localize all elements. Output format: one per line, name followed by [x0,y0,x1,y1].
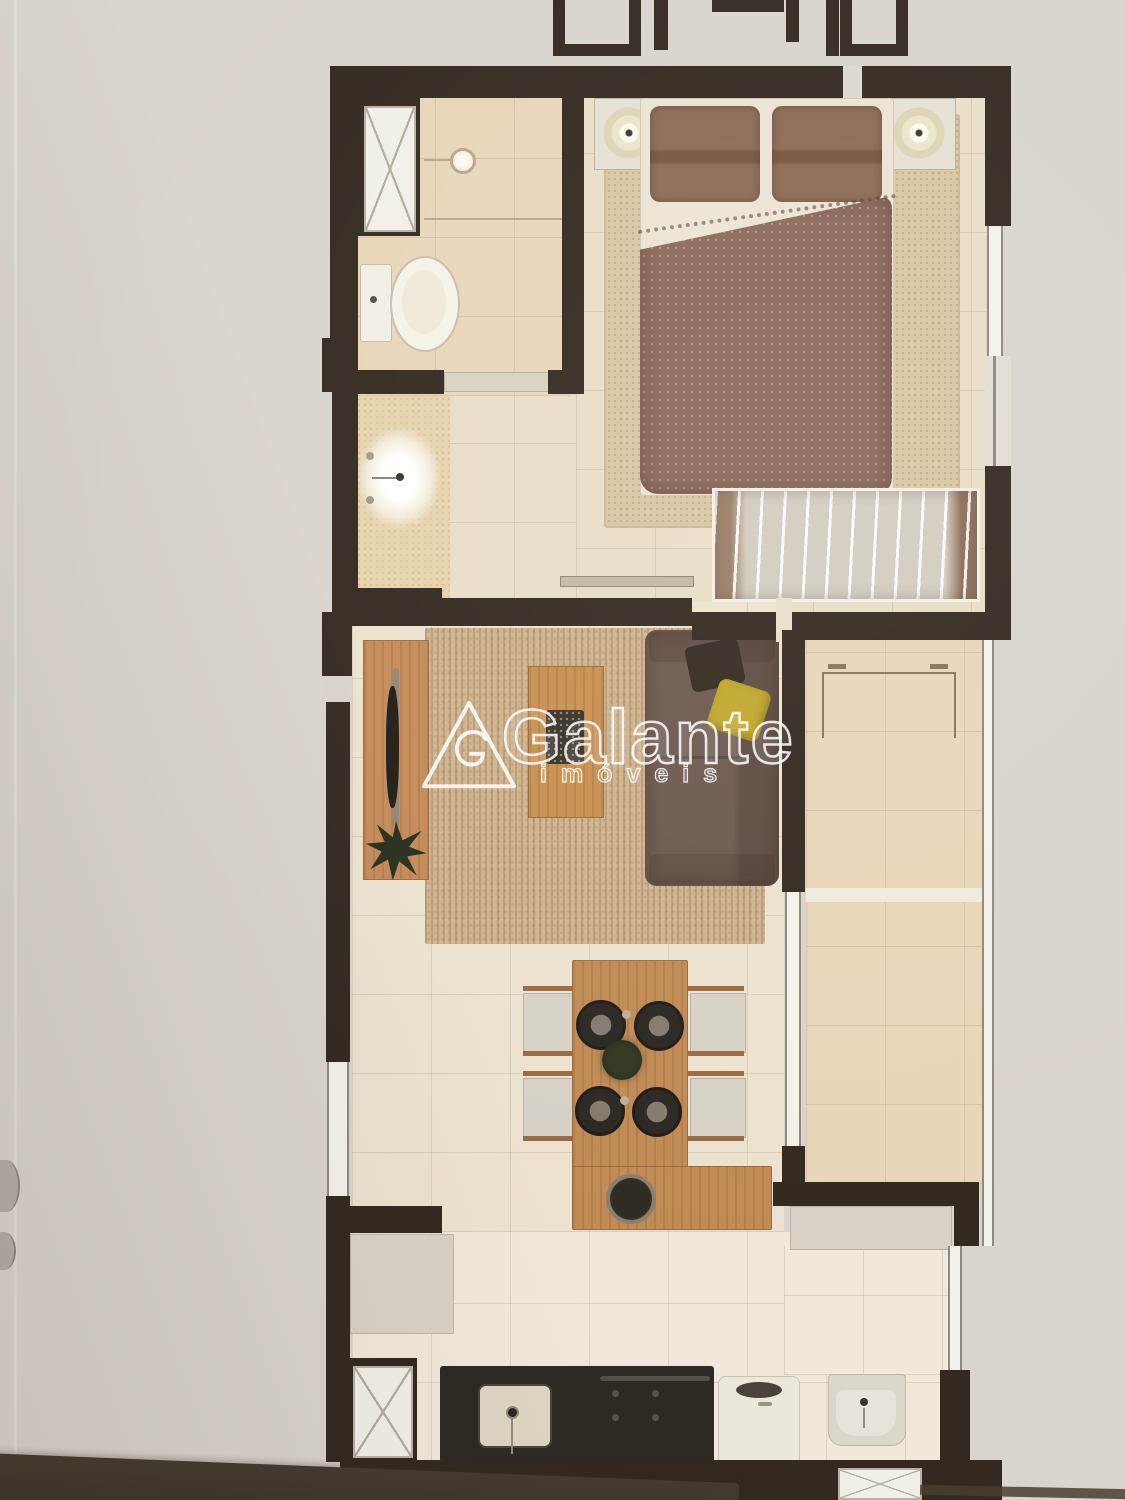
stove-burner [652,1390,659,1397]
dining-chair [523,993,579,1053]
toilet-flush-button [370,296,377,303]
double-bed [640,98,892,494]
place-setting [632,1087,682,1137]
stray-object-blob [0,1160,20,1212]
kitchen-faucet-stem [511,1418,513,1454]
stove-burner [612,1390,619,1397]
entry-door-sill [324,676,350,702]
balcony-outline-tick [930,664,948,669]
gray-counter [790,1206,952,1250]
kitchen-shaft [353,1366,413,1458]
wall-left-vanity [332,392,358,592]
wall-mid-right [692,612,985,640]
bathroom-bottom-wall-left [352,370,444,394]
washer-lid [736,1382,782,1398]
bed-pillow-left [650,106,760,202]
counter-extension [572,1166,772,1230]
plant-icon [364,818,428,882]
kitchen-window [327,1062,349,1196]
vanity-handle [366,496,374,504]
upper-plan-room-outline [553,0,641,56]
wall-left-bathroom [330,66,358,340]
balcony-window [785,892,801,1146]
wall-left-living [326,702,350,1062]
balcony-glass-right [982,640,994,1246]
washer-latch [758,1402,772,1406]
candle-dot [620,1096,629,1105]
wall-top [345,66,1011,98]
window-bay [985,356,1011,466]
bathroom-right-wall [562,96,584,394]
wall-right-bedroom-lower [985,466,1011,640]
balcony-lower-floor [806,902,984,1184]
vanity-spout [372,477,398,479]
decor-bowl [606,1174,656,1224]
wall-balcony-block [954,1182,979,1246]
bed-pillow-right [772,106,882,202]
wall-balcony-bottom [773,1182,979,1206]
stove-burner [612,1414,619,1421]
wardrobe [712,488,980,602]
window-mullion-line [993,356,996,466]
upper-plan-wall-stub [786,0,799,42]
floorplan-photo: Galante imóveis [0,0,1125,1500]
laundry-window [948,1246,962,1370]
laundry-floor [784,1245,948,1375]
shower-supply-line [424,159,452,161]
toilet-seat [402,270,446,334]
upper-plan-wall-stub [826,0,839,56]
shower-drain [450,148,476,174]
ventilation-shaft [364,106,416,232]
wall-under-window [782,1146,805,1186]
watermark-subtitle: imóveis [540,760,731,789]
vanity-handle [366,452,374,460]
tv [386,686,399,808]
balcony-counter-outline [822,672,956,738]
tank-faucet [860,1398,868,1406]
lamp-right [890,104,948,162]
bedroom-window [987,226,1003,356]
table-centerpiece [602,1040,642,1080]
wall-right-bedroom-upper [985,66,1011,226]
kitchen-counter-left [350,1234,454,1334]
bathroom-door-threshold [444,372,550,392]
toilet-tank [360,264,392,342]
upper-plan-room-outline [840,0,908,56]
paper-fold-highlight [14,0,17,1500]
dining-chair [523,1078,579,1138]
dining-chair [690,1078,746,1138]
vanity-faucet [396,473,404,481]
candle-dot [622,1010,631,1019]
wall-kitchen-arm [326,1206,442,1233]
wall-mid-left [352,598,692,626]
sliding-door-track [560,576,694,587]
stove-label-smudge [600,1376,710,1381]
sofa-armrest [649,854,775,884]
tank-faucet-stem [863,1408,865,1428]
bottom-shaft-window [838,1468,922,1500]
wall-top-gap [843,66,862,98]
place-setting [575,1086,625,1136]
stove-burner [652,1414,659,1421]
upper-plan-wall-bar [712,0,784,12]
upper-plan-wall-stub [654,0,668,50]
balcony-divider [806,888,984,902]
shower-divider-line [424,218,570,220]
place-setting [634,1001,684,1051]
laundry-tank-bowl [836,1390,896,1436]
dining-chair [690,993,746,1053]
wall-left-entry-block [322,612,352,676]
balcony-outline-tick [828,664,846,669]
